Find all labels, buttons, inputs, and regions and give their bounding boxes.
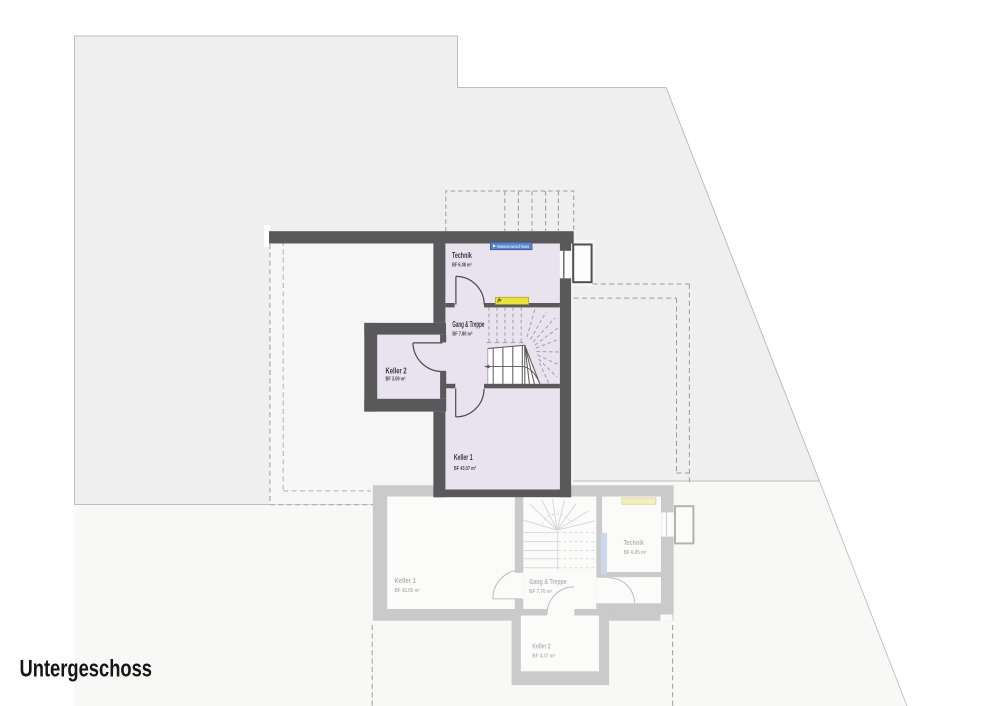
svg-text:Keller 2: Keller 2 — [386, 366, 408, 375]
svg-text:Keller 1: Keller 1 — [454, 453, 473, 462]
svg-text:BF 7.70 m²: BF 7.70 m² — [529, 589, 552, 595]
svg-text:Gang & Treppe: Gang & Treppe — [452, 320, 484, 329]
svg-text:Technik: Technik — [624, 540, 644, 547]
svg-text:BF 3.59 m²: BF 3.59 m² — [386, 377, 406, 383]
svg-text:Wasseranschluss: Wasseranschluss — [497, 244, 530, 249]
svg-text:Keller 1: Keller 1 — [395, 578, 417, 585]
svg-text:BF 7.80 m²: BF 7.80 m² — [452, 331, 472, 337]
svg-text:BF 6.05 m²: BF 6.05 m² — [624, 550, 647, 556]
svg-text:BF 43.07 m²: BF 43.07 m² — [454, 466, 476, 472]
svg-text:Gang & Treppe: Gang & Treppe — [529, 579, 566, 586]
svg-text:BF 4.37 m²: BF 4.37 m² — [532, 654, 555, 660]
svg-text:Untergeschoss: Untergeschoss — [20, 656, 153, 683]
svg-text:Technik: Technik — [452, 251, 472, 260]
svg-text:BF 6.08 m²: BF 6.08 m² — [452, 263, 472, 269]
svg-text:BF 42.05 m²: BF 42.05 m² — [395, 588, 421, 594]
svg-text:Keller 2: Keller 2 — [532, 644, 550, 651]
